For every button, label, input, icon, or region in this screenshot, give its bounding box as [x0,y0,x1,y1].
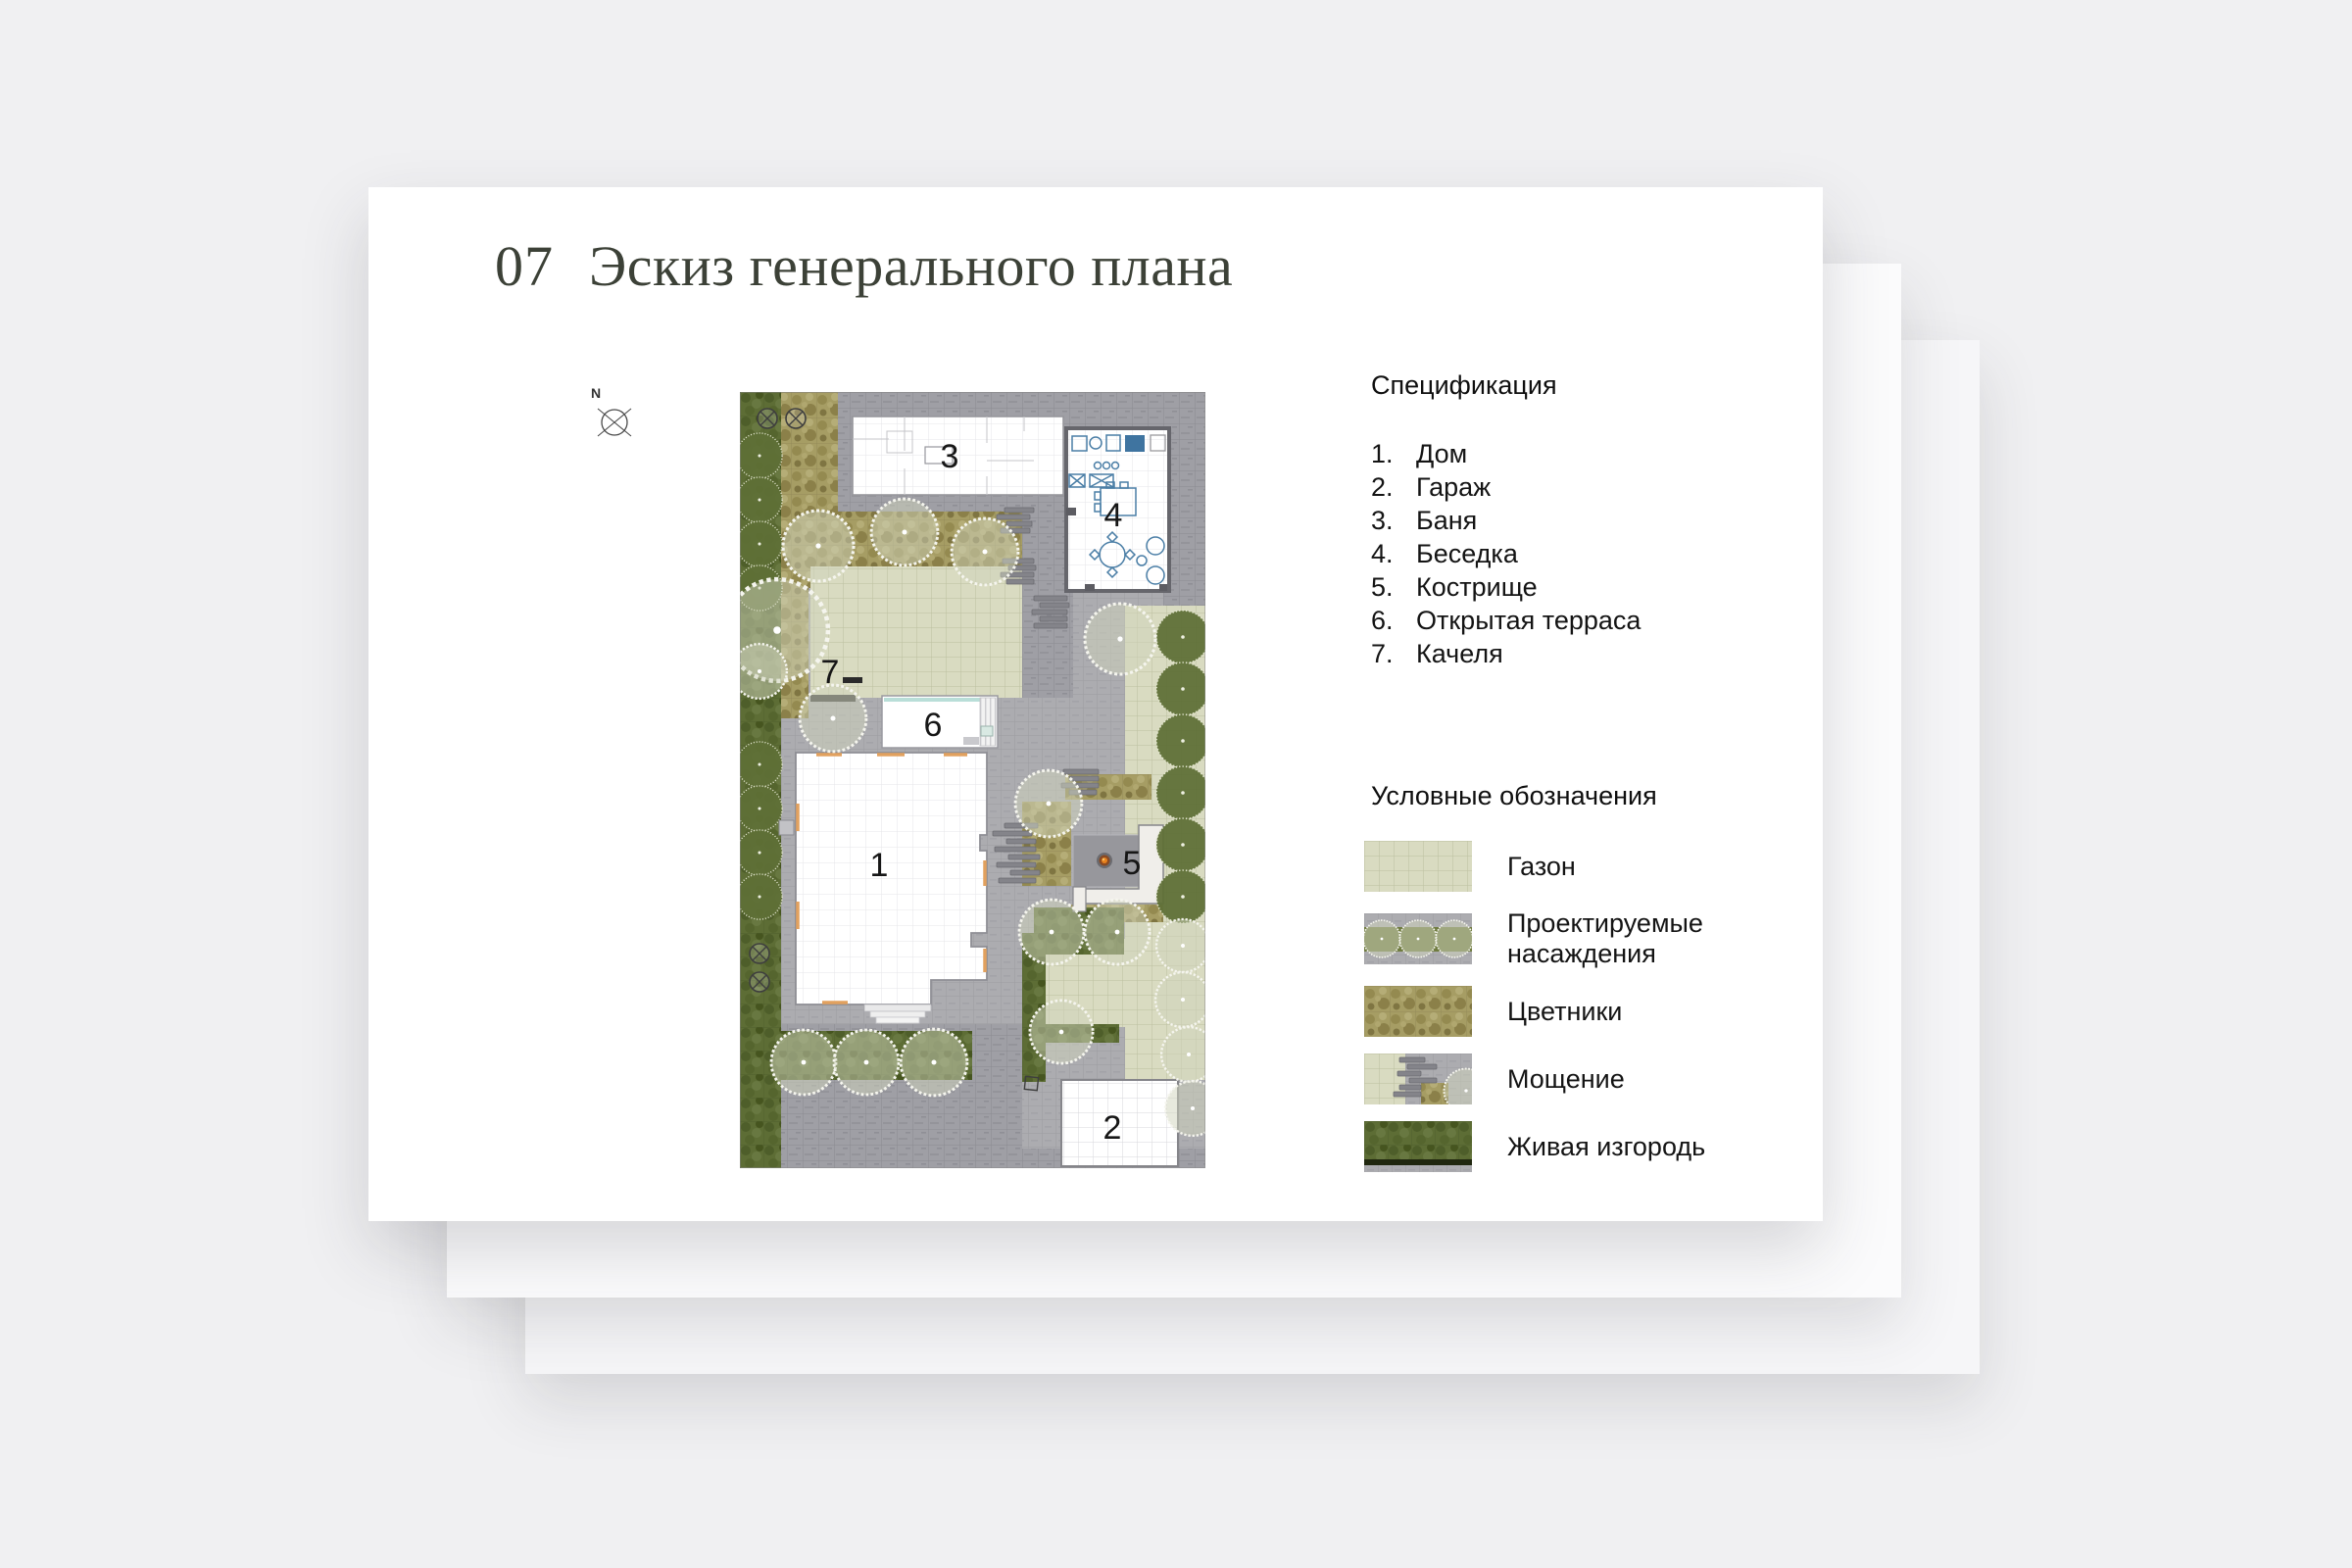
legend-swatch-flowerbeds [1364,986,1472,1037]
site-plan: 3 4 7 6 1 5 2 [740,392,1205,1168]
plan-label-gazebo: 4 [1104,497,1123,534]
plan-label-house: 1 [870,847,889,884]
compass-rose: N [588,383,641,453]
page-title: Эскиз генерального плана [589,234,1233,299]
spec-item-garage: 2.Гараж [1371,470,1743,504]
legend-row-lawn: Газон [1364,841,1825,892]
spec-item-bathhouse: 3.Баня [1371,504,1743,537]
legend-swatch-paving [1364,1053,1472,1104]
slide-page-number: 07 [495,234,554,299]
legend-row-flowerbeds: Цветники [1364,986,1825,1037]
plan-label-swing: 7 [821,654,840,691]
plan-label-fire-pit: 5 [1123,845,1142,882]
legend-swatch-hedge [1364,1121,1472,1172]
spec-item-house: 1.Дом [1371,437,1743,470]
slide-card: 07 Эскиз генерального плана N [368,187,1823,1221]
fire-pit-icon [1102,857,1107,863]
legend-swatch-plantings [1364,913,1472,964]
spec-item-terrace: 6.Открытая терраса [1371,604,1743,637]
plan-label-terrace: 6 [924,707,943,744]
compass-north-label: N [591,385,601,401]
compass-needles [598,409,631,436]
slide-title-row: 07 Эскиз генерального плана [495,234,1233,299]
lawn-central [810,566,1022,698]
specification-panel: Спецификация 1.Дом 2.Гараж 3.Баня 4.Бесе… [1371,369,1743,670]
legend-panel: Условные обозначения Газон Проектируемые… [1364,780,1825,1172]
fire-pit-area [1073,825,1163,911]
spec-item-swing: 7.Качеля [1371,637,1743,670]
spec-item-fire-pit: 5.Кострище [1371,570,1743,604]
specification-list: 1.Дом 2.Гараж 3.Баня 4.Беседка 5.Кострищ… [1371,437,1743,670]
legend-row-hedge: Живая изгородь [1364,1121,1825,1172]
legend-row-paving: Мощение [1364,1053,1825,1104]
spec-item-gazebo: 4.Беседка [1371,537,1743,570]
legend-row-plantings: Проектируемые насаждения [1364,908,1825,969]
plan-label-garage: 2 [1103,1109,1122,1147]
specification-heading: Спецификация [1371,369,1743,401]
legend-heading: Условные обозначения [1371,780,1825,811]
plan-label-bathhouse: 3 [941,438,959,475]
legend-swatch-lawn [1364,841,1472,892]
